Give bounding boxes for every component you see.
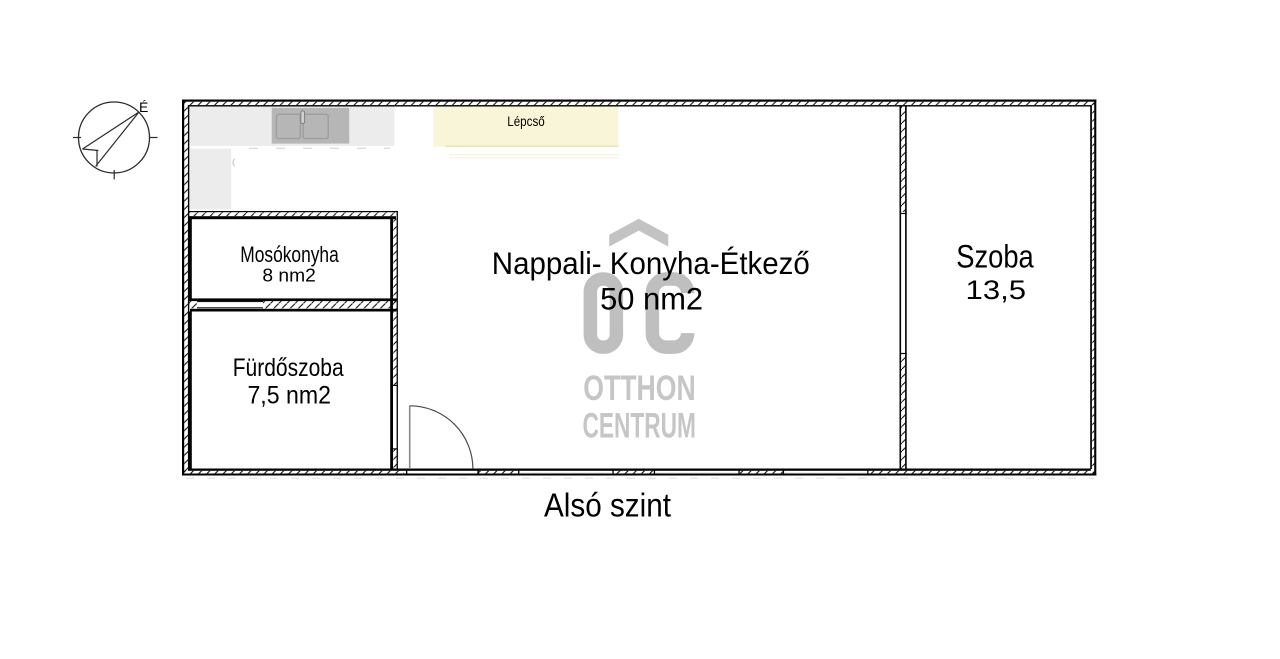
svg-text:Mosókonyha: Mosókonyha <box>240 242 339 267</box>
svg-text:Lépcső: Lépcső <box>507 114 545 129</box>
svg-text:Alsó szint: Alsó szint <box>544 487 672 525</box>
svg-text:É: É <box>139 99 148 115</box>
svg-text:50 nm2: 50 nm2 <box>600 281 703 317</box>
svg-text:OTTHON: OTTHON <box>583 368 696 408</box>
svg-text:Nappali- Konyha-Étkező: Nappali- Konyha-Étkező <box>492 245 810 281</box>
svg-text:Fürdőszoba: Fürdőszoba <box>233 354 344 382</box>
svg-text:8 nm2: 8 nm2 <box>262 266 316 286</box>
svg-text:13,5: 13,5 <box>966 275 1027 305</box>
svg-text:CENTRUM: CENTRUM <box>582 405 696 445</box>
svg-text:Szoba: Szoba <box>956 238 1034 274</box>
svg-text:7,5 nm2: 7,5 nm2 <box>247 381 331 409</box>
